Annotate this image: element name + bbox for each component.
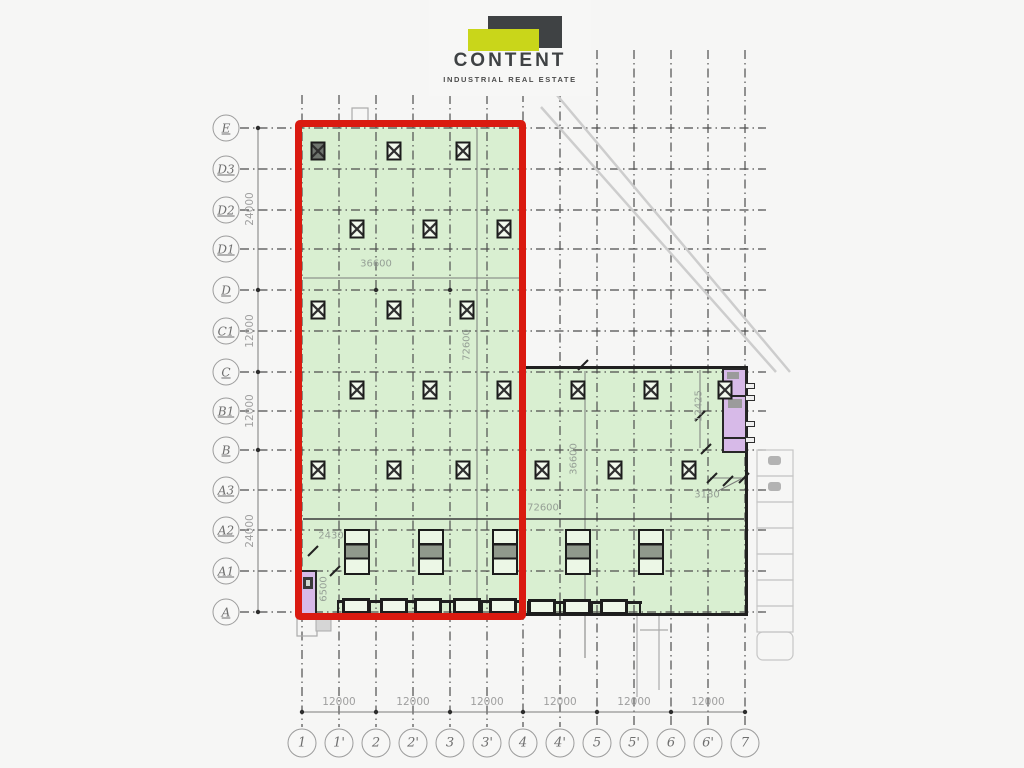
car-icon [768,482,781,491]
axis-dimension-label: 24000 [244,514,256,547]
column-axis-bubble: 1 [288,729,317,758]
row-axis-bubble: C [213,359,240,386]
column-axis-bubble: 6' [694,729,723,758]
highlighted-unit-outline [295,120,526,620]
row-axis-bubble: A3 [213,477,240,504]
column-axis-bubble: 4 [509,729,538,758]
row-axis-bubble: D3 [213,156,240,183]
column-axis-bubble: 1' [325,729,354,758]
column-axis-bubble: 6 [657,729,686,758]
axis-dimension-label: 24000 [244,192,256,225]
column-axis-bubble: 2' [399,729,428,758]
door-mark [745,437,755,443]
right-warehouse-area [523,368,745,615]
axis-dimension-label: 12000 [543,696,576,708]
axis-dimension-label: 12000 [244,314,256,347]
row-axis-bubble: B1 [213,398,240,425]
column-axis-bubble: 3' [473,729,502,758]
column-axis-bubble: 3 [436,729,465,758]
row-axis-bubble: A1 [213,558,240,585]
door-mark [745,421,755,427]
brand-name: CONTENT [429,50,591,72]
parking-strip [757,450,793,660]
row-axis-bubble: E [213,115,240,142]
brand-logo: CONTENT INDUSTRIAL REAL ESTATE [429,0,591,96]
column-axis-bubble: 2 [362,729,391,758]
logo-accent-block [468,29,539,51]
site-plan-canvas: 3660072600726003660012425318024306500 CO… [0,0,1024,768]
axis-dimension-label: 12000 [322,696,355,708]
brand-tagline: INDUSTRIAL REAL ESTATE [429,75,591,84]
door-mark [745,395,755,401]
row-axis-bubble: D [213,277,240,304]
column-axis-bubble: 5' [620,729,649,758]
row-axis-bubble: A2 [213,517,240,544]
row-axis-bubble: C1 [213,318,240,345]
column-axis-bubble: 7 [731,729,760,758]
column-axis-bubble: 5 [583,729,612,758]
axis-dimension-label: 12000 [244,394,256,427]
row-axis-bubble: D2 [213,197,240,224]
site-road-lines [541,94,790,372]
axis-dimension-label: 12000 [617,696,650,708]
row-axis-bubble: A [213,599,240,626]
axis-dimension-label: 12000 [396,696,429,708]
car-icon [768,456,781,465]
row-axis-bubble: B [213,437,240,464]
column-axis-bubble: 4' [546,729,575,758]
door-mark [745,383,755,389]
axis-dimension-label: 12000 [691,696,724,708]
axis-dimension-label: 12000 [470,696,503,708]
row-axis-bubble: D1 [213,236,240,263]
